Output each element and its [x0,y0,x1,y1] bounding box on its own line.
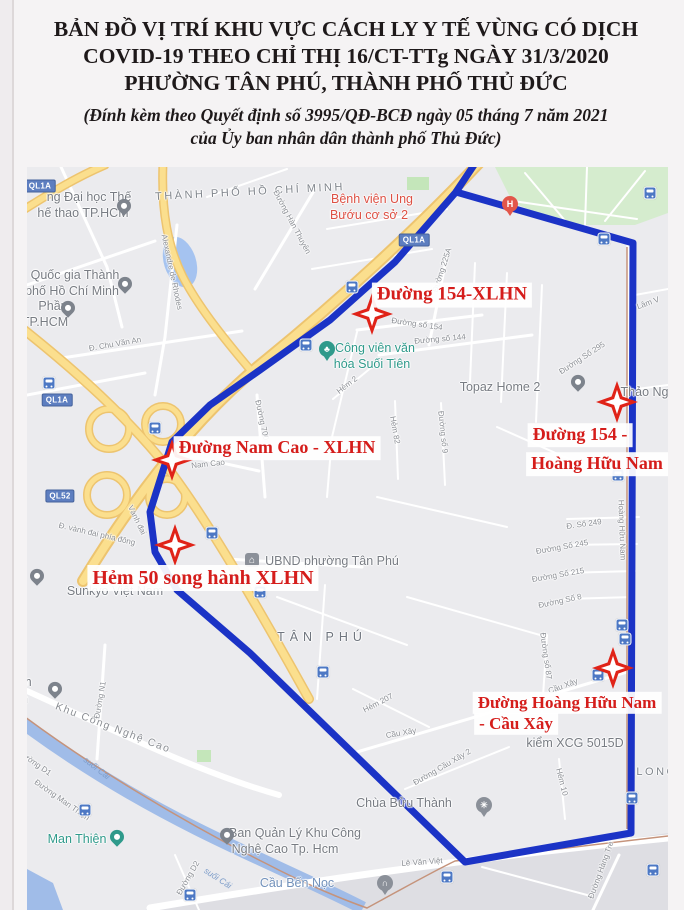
street-label: Hoàng Hữu Nam [616,500,627,561]
bus-stop-icon [184,889,197,902]
street-label: Hẻm 207 [361,692,394,715]
bus-stop-icon [619,633,632,646]
route-shield-badge: QL1A [27,180,55,193]
poi-pin [27,566,47,586]
map-label: am [27,675,32,689]
street-label: Cầu Xây [385,726,417,740]
route-shield-badge: QL1A [42,394,73,407]
bus-stop-icon [644,187,657,200]
street-label: Hẻm 10 [554,767,570,796]
street-label: Đường Số 8 [538,592,583,610]
map-overlay-layer: THÀNH PHỐ HỒ CHÍ MINHTÂN PHÚLONGng Đại h… [27,167,668,910]
quarantine-street-label: Đường Nam Cao - XLHN [174,436,381,460]
map-label: Man Thiện [48,832,107,846]
document-header: BẢN ĐỒ VỊ TRÍ KHU VỰC CÁCH LY Y TẾ VÙNG … [20,16,672,150]
map-label: THÀNH PHỐ HỒ CHÍ MINH [155,181,345,203]
street-label: Đ. vành đai phía đông [58,521,136,547]
street-label: Đường số 9 [436,410,449,453]
map-label: hế thao TP.HCM [37,206,128,220]
street-label: Đường Hàn Thuyên [271,189,312,256]
map-label: Cầu Bến Nọc [260,876,334,890]
map-label: Công viên văn [335,341,415,355]
map-label: hóa Suối Tiên [334,357,410,371]
bus-stop-icon [598,233,611,246]
map-image: THÀNH PHỐ HỒ CHÍ MINHTÂN PHÚLONGng Đại h… [27,167,668,910]
quarantine-street-label: Hẻm 50 song hành XLHN [87,565,318,591]
place-pin [568,372,588,392]
route-shield-badge: QL52 [45,490,74,503]
street-label: Đường Cầu Xây 2 [412,747,473,787]
map-label: TÂN PHÚ [277,630,367,644]
bridge-pin: ∩ [377,875,393,891]
street-label: Đường D1 [27,748,53,777]
street-label: Đường số 154 [391,316,443,332]
quarantine-star-marker [596,381,638,423]
map-label: Bệnh viện Ung [331,192,413,206]
route-shield-badge: QL1A [399,234,430,247]
bus-stop-icon [149,422,162,435]
map-subtitle-line-2: của Ủy ban nhân dân thành phố Thủ Đức) [20,127,672,150]
bus-stop-icon [317,666,330,679]
quarantine-street-label: Hoàng Hữu Nam [526,452,668,476]
street-label: Lê Văn Việt [401,856,443,868]
quarantine-street-label: - Cầu Xây [474,713,558,735]
map-title-line-2: COVID-19 THEO CHỈ THỊ 16/CT-TTg NGÀY 31/… [20,43,672,70]
street-label: Đ. Chu Văn An [88,335,142,353]
street-label: Đường số 87 [538,632,553,680]
bus-stop-icon [300,339,313,352]
street-label: Đường số 144 [414,332,466,345]
map-label: LONG [636,766,668,778]
street-label: Đường Số 215 [531,566,585,584]
map-label: suối Cái [202,865,233,890]
map-title-line-3: PHƯỜNG TÂN PHÚ, THÀNH PHỐ THỦ ĐỨC [20,70,672,97]
map-label: Chùa Bửu Thành [356,796,452,810]
map-label: kiểm XCG 5015D [526,736,623,750]
street-label: Đường Hàng Tre [586,840,615,900]
street-label: Đường N1 [92,681,107,720]
poi-pin [45,679,65,699]
map-label: Ban Quản Lý Khu Công [229,826,361,840]
map-label: TP.HCM [27,315,68,329]
street-label: Đường Số 245 [535,538,589,556]
quarantine-street-label: Đường Hoàng Hữu Nam [473,692,662,714]
quarantine-street-label: Đường 154 - [528,423,633,447]
page-left-edge [0,0,14,910]
hospital-pin: H [502,196,518,212]
park-pin: ♣ [319,341,335,357]
map-label: Topaz Home 2 [460,380,541,394]
bus-stop-icon [626,792,639,805]
map-label: suối Cái [82,755,112,782]
street-label: Đ. Số 249 [566,517,602,531]
quarantine-street-label: Đường 154-XLHN [372,283,532,308]
map-label: Bướu cơ sở 2 [330,208,408,222]
bus-stop-icon [346,281,359,294]
bus-stop-icon [43,377,56,390]
bus-stop-icon [616,619,629,632]
map-label: phố Hồ Chí Minh [27,284,119,298]
scanned-map-document: { "header": { "title_lines": [ "BẢN ĐỒ V… [0,0,684,910]
quarantine-star-marker [592,647,634,689]
street-label: Hẻm 82 [388,415,402,444]
map-label: on [27,692,28,706]
street-label: Khu Công Nghệ Cao [54,700,173,755]
street-label: Đường Số 295 [557,340,606,376]
map-title-line-1: BẢN ĐỒ VỊ TRÍ KHU VỰC CÁCH LY Y TẾ VÙNG … [20,16,672,43]
street-label: Lâm V [636,295,661,311]
bus-stop-icon [206,527,219,540]
map-label: Quốc gia Thành [31,268,120,282]
place-pin [107,827,127,847]
map-label: Nghệ Cao Tp. Hcm [232,842,339,856]
bus-stop-icon [441,871,454,884]
bus-stop-icon [79,804,92,817]
street-label: Alexandre de Rhodes [160,233,185,310]
map-subtitle-line-1: (Đính kèm theo Quyết định số 3995/QĐ-BCĐ… [20,104,672,127]
street-label: Đường 700 [253,399,270,441]
street-label: Vành đai [126,504,148,536]
quarantine-star-marker [154,524,196,566]
bus-stop-icon [647,864,660,877]
pagoda-pin: ✳ [476,797,492,813]
street-label: Hẻm 2 [335,374,359,396]
